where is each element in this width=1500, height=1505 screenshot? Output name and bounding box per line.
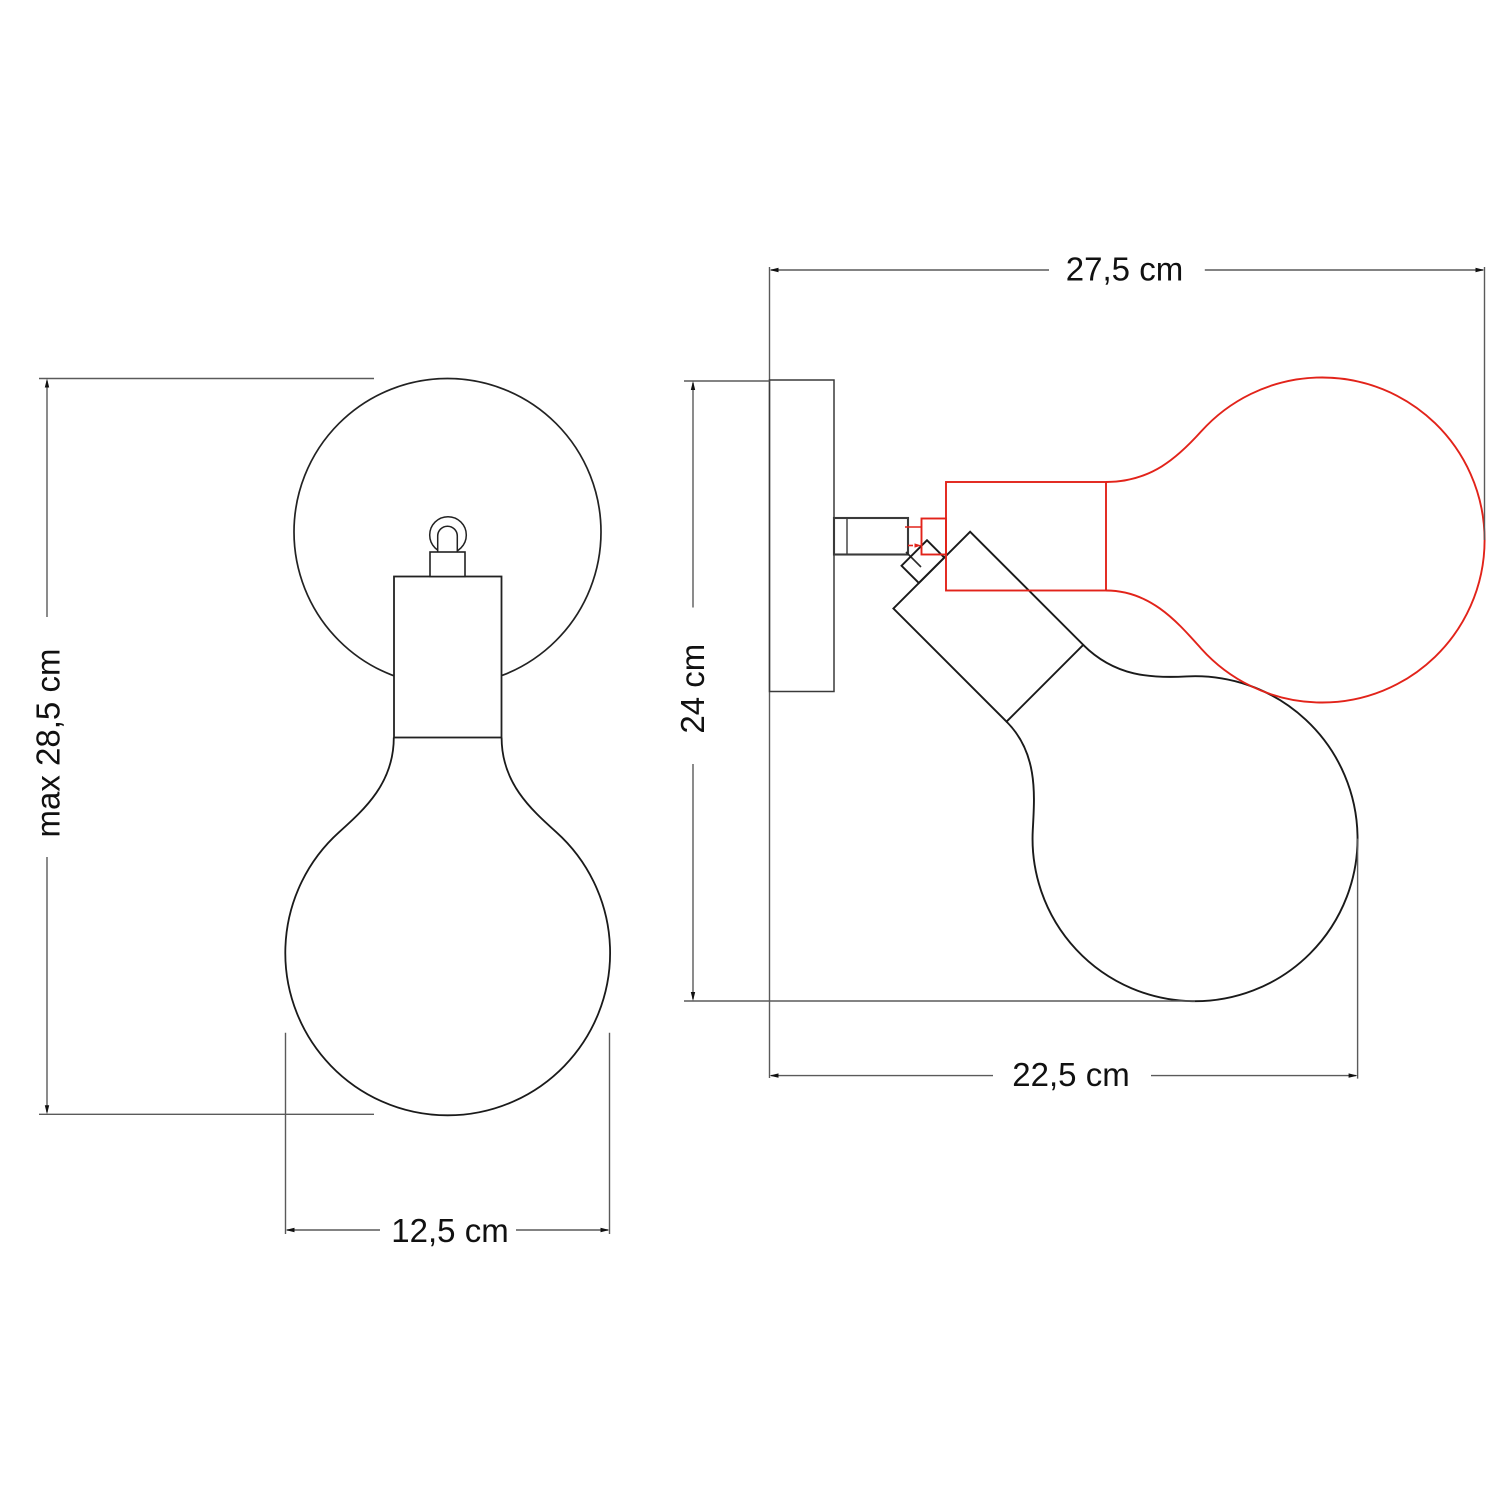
svg-text:12,5 cm: 12,5 cm: [391, 1212, 508, 1249]
svg-text:22,5 cm: 22,5 cm: [1012, 1056, 1129, 1093]
svg-text:max 28,5 cm: max 28,5 cm: [30, 649, 67, 838]
svg-text:24 cm: 24 cm: [674, 644, 711, 734]
svg-text:27,5 cm: 27,5 cm: [1066, 251, 1183, 288]
